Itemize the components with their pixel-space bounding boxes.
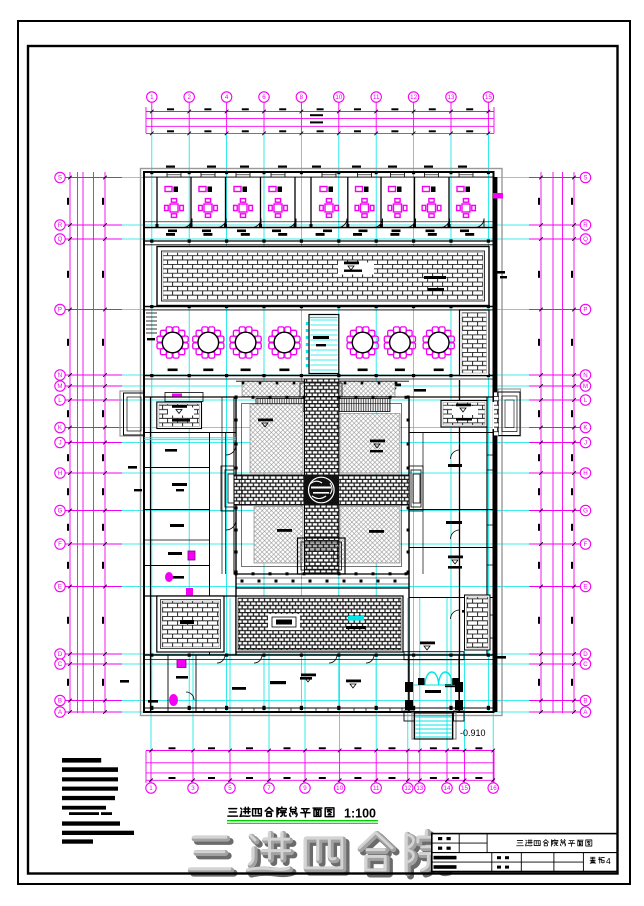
svg-text:1:100: 1:100 [344,807,376,821]
svg-text:7: 7 [267,785,271,792]
svg-text:5: 5 [228,785,232,792]
svg-text:10: 10 [335,94,342,101]
svg-text:J: J [584,440,587,447]
svg-text:9: 9 [303,785,307,792]
svg-text:P: P [583,307,587,314]
svg-text:12: 12 [404,785,411,792]
svg-text:M: M [583,383,588,390]
svg-text:8: 8 [300,94,304,101]
svg-text:Q: Q [58,236,63,243]
svg-text:13: 13 [416,785,423,792]
svg-text:L: L [58,397,62,404]
svg-text:N: N [583,372,587,379]
svg-text:11: 11 [373,94,380,101]
svg-text:14: 14 [444,785,451,792]
svg-text:J: J [58,440,61,447]
svg-text:11: 11 [373,785,380,792]
svg-text:S: S [58,175,62,182]
svg-text:H: H [583,470,587,477]
svg-text:4: 4 [225,94,229,101]
svg-text:G: G [583,508,588,515]
svg-text:1: 1 [150,94,154,101]
svg-text:B: B [583,698,587,705]
svg-text:4: 4 [606,856,611,866]
svg-text:F: F [584,541,588,548]
svg-text:M: M [57,383,62,390]
svg-text:-0.910: -0.910 [460,728,486,738]
svg-text:E: E [583,584,587,591]
svg-text:E: E [58,584,62,591]
svg-text:P: P [58,307,62,314]
svg-text:R: R [58,222,63,229]
svg-text:6: 6 [262,94,266,101]
svg-text:16: 16 [490,785,497,792]
svg-text:Q: Q [583,236,588,243]
svg-text:H: H [58,470,62,477]
svg-text:C: C [58,661,63,668]
svg-text:3: 3 [191,785,195,792]
svg-text:12: 12 [410,94,417,101]
svg-text:S: S [583,175,587,182]
svg-text:B: B [58,698,62,705]
svg-text:L: L [584,397,588,404]
svg-text:15: 15 [461,785,468,792]
svg-text:13: 13 [448,94,455,101]
svg-text:D: D [583,651,588,658]
svg-text:N: N [58,372,62,379]
svg-text:1: 1 [149,785,153,792]
svg-text:R: R [583,222,588,229]
svg-text:2: 2 [187,94,191,101]
svg-text:G: G [58,508,63,515]
svg-text:15: 15 [485,94,492,101]
svg-text:F: F [58,541,62,548]
svg-text:D: D [58,651,63,658]
svg-text:C: C [583,661,588,668]
svg-text:10: 10 [336,785,343,792]
